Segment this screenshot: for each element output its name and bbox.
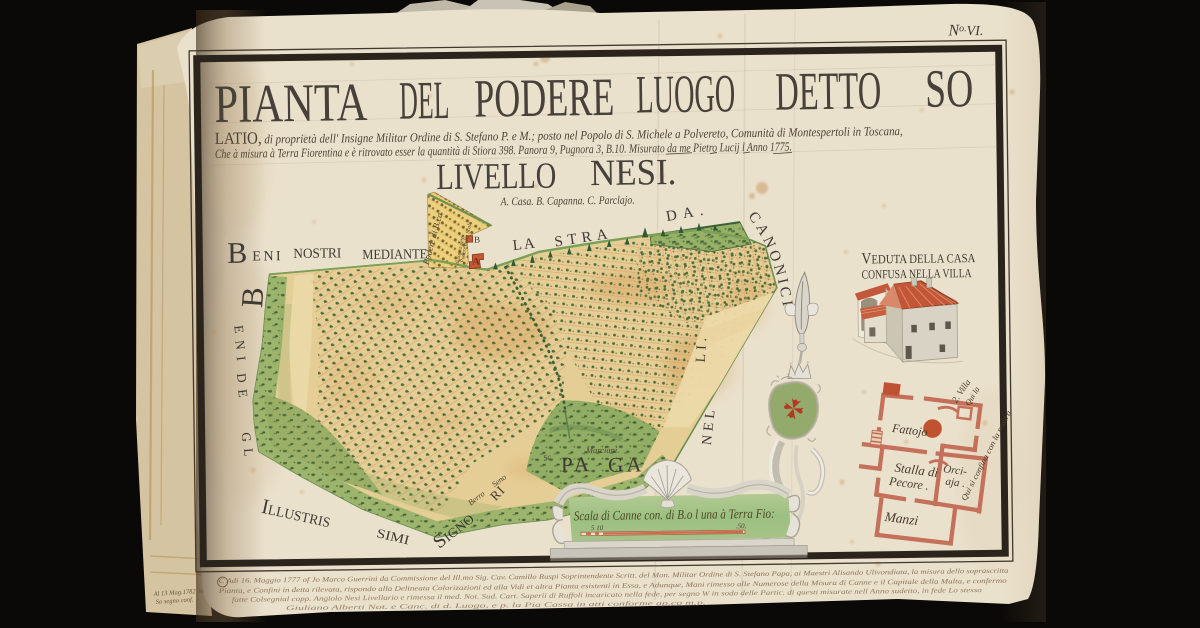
svg-text:A: A (472, 257, 480, 268)
svg-text:.50.: .50. (736, 522, 747, 530)
svg-text:LA: LA (512, 235, 538, 254)
svg-text:B: B (474, 235, 480, 245)
svg-text:LI.: LI. (694, 333, 711, 363)
svg-text:LUOGO: LUOGO (636, 63, 736, 124)
svg-text:L: L (241, 448, 257, 457)
svg-text:D: D (234, 372, 250, 383)
svg-text:PA: PA (561, 452, 592, 476)
svg-text:ENI: ENI (252, 249, 283, 264)
svg-text:DETTO: DETTO (775, 60, 882, 121)
svg-text:Marciani.: Marciani. (585, 445, 620, 455)
svg-text:GA: GA (608, 452, 645, 476)
svg-text:MEDIANTE: MEDIANTE (362, 247, 427, 263)
svg-text:NESI.: NESI. (590, 152, 677, 194)
svg-text:NOSTRI: NOSTRI (293, 246, 342, 262)
svg-text:A. Casa. B. Capanna. C. Parcla: A. Casa. B. Capanna. C. Parclajo. (500, 195, 635, 209)
svg-text:LIVELLO: LIVELLO (436, 156, 557, 199)
svg-text:Scala di Canne con. di B.o l u: Scala di Canne con. di B.o l una à Terra… (574, 506, 775, 524)
svg-text:SO: SO (925, 58, 974, 119)
svg-text:5 10: 5 10 (591, 524, 604, 532)
svg-text:PIANTA: PIANTA (214, 72, 368, 134)
svg-text:PODERE: PODERE (474, 67, 615, 129)
svg-text:G: G (239, 432, 255, 443)
svg-text:VEDUTA DELLA CASA: VEDUTA DELLA CASA (861, 249, 975, 267)
svg-text:B: B (227, 237, 247, 270)
svg-text:B: B (234, 286, 270, 309)
svg-text:DEL: DEL (399, 70, 450, 131)
svg-text:aja .: aja . (945, 476, 966, 490)
